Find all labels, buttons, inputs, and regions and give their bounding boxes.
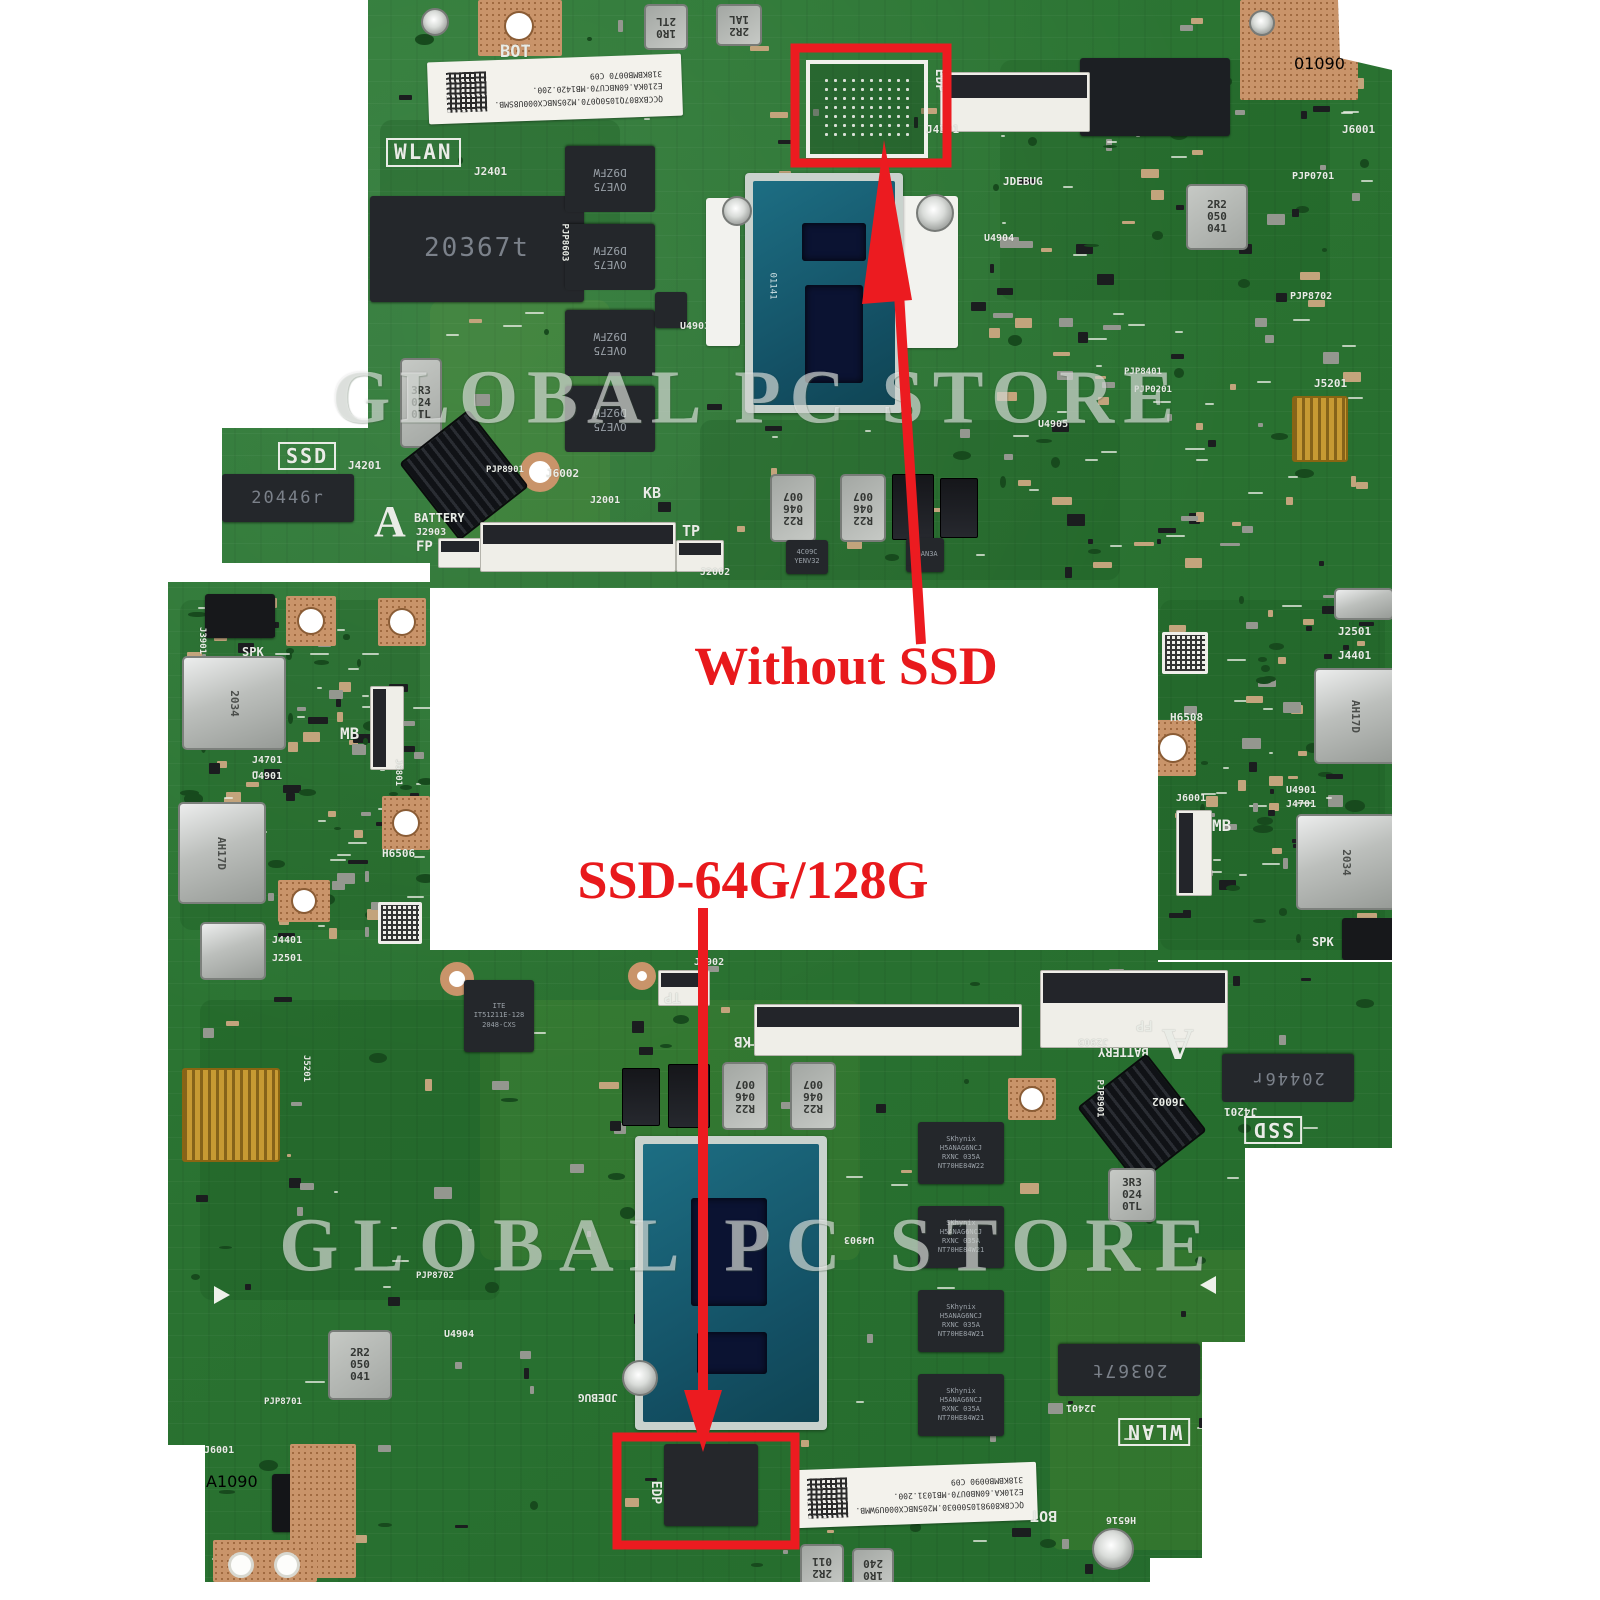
- smd-component: [275, 653, 290, 655]
- chip-marking: SKhynix H5ANAG6NCJ RXNC 035A NT70HE84W21: [938, 1303, 984, 1339]
- sticker-line: 318KBMB0070 C09: [590, 66, 663, 81]
- smd-component: [1351, 476, 1356, 487]
- ffc-actuator: [757, 1007, 1019, 1027]
- smd-component: [964, 1079, 970, 1084]
- smd-component: [1267, 214, 1286, 225]
- smd-component: [337, 854, 350, 856]
- inductor: R22 046 007: [790, 1062, 836, 1130]
- smd-component: [318, 820, 325, 822]
- smd-component: [414, 752, 424, 759]
- card-connector: [1292, 396, 1348, 462]
- smd-component: [1230, 384, 1235, 391]
- mount-hole: [394, 811, 418, 835]
- module-slot: 20446r: [222, 474, 354, 522]
- mount-hole: [299, 609, 323, 633]
- smd-component: [1067, 514, 1084, 526]
- smd-component: [1212, 871, 1223, 873]
- smd-component: [407, 896, 424, 898]
- smd-component: [1349, 1174, 1361, 1181]
- smd-component: [1265, 335, 1274, 343]
- smd-component: [1088, 338, 1107, 340]
- smd-component: [1257, 381, 1271, 383]
- smd-component: [625, 1498, 640, 1507]
- ffc-actuator: [661, 973, 707, 987]
- screw-grommet: [1092, 1528, 1134, 1570]
- smd-component: [348, 668, 359, 670]
- smd-component: [328, 811, 336, 817]
- copper-pad: [1150, 720, 1196, 776]
- ram-chip: SKhynix H5ANAG6NCJ RXNC 035A NT70HE84W21: [918, 1374, 1004, 1436]
- silkscreen-label: FP: [1136, 1018, 1153, 1032]
- smd-component: [354, 1535, 367, 1542]
- silkscreen-label: J4701: [252, 756, 282, 766]
- silkscreen-label: U4904: [444, 1330, 474, 1340]
- smd-component: [1322, 1335, 1333, 1338]
- smd-component: [337, 712, 343, 722]
- io-port: AH17D: [178, 802, 266, 904]
- smd-component: [1276, 293, 1287, 303]
- silkscreen-label: J6002: [546, 468, 579, 479]
- silkscreen-label: J6002: [1152, 1096, 1185, 1107]
- smd-component: [1242, 738, 1261, 749]
- smd-component: [1093, 562, 1112, 568]
- smd-component: [1223, 767, 1229, 769]
- copper-pad: [382, 796, 430, 850]
- silkscreen-label: KB: [734, 1034, 751, 1048]
- io-port: AH17D: [1314, 668, 1398, 764]
- smd-component: [1246, 696, 1263, 703]
- silkscreen-label: SSD: [278, 442, 336, 470]
- smd-component: [1185, 448, 1205, 450]
- module-slot: 20367t: [1058, 1344, 1200, 1396]
- smd-component: [1128, 324, 1144, 326]
- smd-component: [434, 1187, 452, 1198]
- smd-component: [1048, 1403, 1063, 1415]
- chip-marking: 20446r: [1251, 1067, 1324, 1089]
- smd-component: [1269, 752, 1273, 754]
- smd-component: [1000, 476, 1006, 488]
- smd-component: [1205, 403, 1213, 405]
- smd-component: [751, 1563, 763, 1566]
- smd-component: [1169, 625, 1185, 631]
- smd-component: [224, 797, 233, 799]
- smd-component: [530, 1386, 534, 1394]
- smd-component: [530, 1501, 538, 1509]
- silkscreen-label: BATTERY: [414, 512, 465, 524]
- smd-component: [639, 1047, 654, 1055]
- smd-component: [1348, 397, 1363, 399]
- smd-component: [501, 1098, 517, 1102]
- smd-component: [1253, 919, 1266, 923]
- smd-component: [1110, 545, 1122, 547]
- inductor: R22 046 007: [770, 474, 816, 542]
- capacitor: [668, 1064, 710, 1128]
- smd-component: [1238, 780, 1247, 791]
- inductor: R22 046 007: [840, 474, 886, 542]
- inductor: R22 046 007: [722, 1062, 768, 1130]
- inductor: 1R0 2TL: [644, 4, 688, 50]
- smd-component: [388, 1297, 400, 1307]
- io-port: [200, 922, 266, 980]
- smd-component: [1356, 999, 1374, 1008]
- smd-component: [632, 1021, 644, 1033]
- smd-component: [1001, 135, 1005, 137]
- smd-component: [750, 46, 769, 51]
- smd-component: [1213, 1454, 1218, 1458]
- smd-component: [1263, 1561, 1275, 1568]
- silkscreen-label: U4901: [252, 772, 282, 782]
- sticker-text: QCC8K809810500030.M205NBCX000U9WMB.E210K…: [855, 1472, 1025, 1516]
- smd-component: [1326, 774, 1343, 779]
- silkscreen-label: WLAN: [1118, 1418, 1190, 1446]
- smd-component: [953, 451, 971, 460]
- inductor: 1R0 240: [852, 1548, 894, 1590]
- silkscreen-label: J4701: [1286, 800, 1316, 810]
- smd-component: [226, 1021, 238, 1026]
- smd-component: [1051, 457, 1060, 468]
- mount-hole: [628, 962, 656, 990]
- silkscreen-label: PJP8701: [264, 1398, 302, 1407]
- smd-component: [1208, 440, 1216, 447]
- usb-c-port: 01090: [1294, 54, 1392, 114]
- mount-hole: [228, 1552, 254, 1578]
- smd-component: [570, 1164, 584, 1173]
- smd-component: [610, 1121, 621, 1130]
- smd-component: [1014, 241, 1034, 248]
- silkscreen-label: J5201: [301, 1055, 310, 1082]
- smd-component: [885, 554, 899, 560]
- info-sticker: QCC8K809810500030.M205NBCX000U9WMB.E210K…: [794, 1462, 1038, 1528]
- smd-component: [1269, 776, 1283, 786]
- smd-component: [778, 140, 794, 144]
- smd-component: [1183, 910, 1191, 918]
- smd-component: [1323, 352, 1338, 364]
- smd-component: [1029, 489, 1039, 491]
- module-slot: 20367t: [370, 196, 584, 302]
- smd-component: [1216, 792, 1228, 794]
- inductor: 2R2 011: [800, 1544, 844, 1590]
- smd-component: [308, 717, 327, 724]
- smd-component: [856, 1401, 864, 1403]
- smd-component: [455, 1362, 462, 1369]
- bga-pad-array: [806, 60, 928, 158]
- smd-component: [1088, 539, 1094, 543]
- smd-component: [599, 1082, 619, 1089]
- barcode-sticker: [378, 902, 422, 944]
- silkscreen-label: J4401: [272, 936, 302, 946]
- sticker-line: 318KBMB0090 C09: [951, 1472, 1024, 1487]
- port-marking: AH17D: [1350, 699, 1363, 732]
- ic-chip: 4C09C YENV32: [786, 540, 828, 574]
- ffc-connector: [1176, 810, 1212, 896]
- silkscreen-label: A: [1162, 1022, 1194, 1066]
- mount-hole: [390, 610, 414, 634]
- smd-component: [1181, 516, 1197, 521]
- smd-component: [1181, 1311, 1186, 1317]
- smd-component: [1319, 561, 1324, 566]
- smd-component: [1134, 542, 1154, 546]
- copper-pad: [378, 598, 426, 646]
- smd-component: [329, 690, 343, 698]
- smd-component: [770, 112, 789, 118]
- capacitor: [892, 474, 934, 540]
- smd-component: [1324, 654, 1332, 659]
- smd-component: [1299, 1387, 1310, 1397]
- usb-c-port: A1090: [206, 1472, 268, 1532]
- silkscreen-label: WLAN: [386, 138, 461, 167]
- smd-component: [492, 1081, 509, 1090]
- smd-component: [971, 302, 987, 311]
- smd-component: [1103, 145, 1117, 148]
- silkscreen-label: SSD: [1244, 1116, 1302, 1144]
- mount-hole: [274, 1552, 300, 1578]
- silkscreen-label: J4401: [1338, 650, 1371, 661]
- smd-component: [1288, 776, 1299, 779]
- silkscreen-label: FP: [416, 540, 433, 554]
- smd-component: [1357, 641, 1365, 645]
- silkscreen-label: H6516: [1106, 1514, 1136, 1524]
- smd-component: [1185, 558, 1201, 568]
- smd-component: [1201, 761, 1208, 764]
- bga-dot-grid: [822, 76, 912, 142]
- screw-grommet: [1249, 10, 1275, 36]
- silkscreen-label: U4901: [1286, 786, 1316, 796]
- smd-component: [378, 1523, 393, 1528]
- cpu-die: [697, 1332, 767, 1374]
- chip-marking: ITE IT51211E-128 2048-CXS: [474, 1002, 525, 1029]
- silkscreen-label: H6506: [382, 848, 415, 859]
- smd-component: [1320, 1221, 1330, 1223]
- barcode-sticker: [1162, 632, 1208, 674]
- smd-component: [1296, 934, 1301, 943]
- smd-component: [283, 785, 301, 793]
- smd-component: [329, 928, 337, 939]
- smd-component: [362, 653, 379, 655]
- smd-component: [783, 1550, 788, 1555]
- inductor-marking: 2R2 050 041: [1207, 199, 1227, 235]
- smd-component: [1052, 497, 1072, 505]
- smd-component: [1073, 254, 1088, 256]
- smd-component: [352, 744, 366, 755]
- mount-hole: [1021, 1088, 1043, 1110]
- smd-component: [348, 860, 368, 864]
- silkscreen-label: J6001: [204, 1446, 234, 1456]
- smd-component: [1085, 1564, 1093, 1574]
- smd-component: [1306, 626, 1312, 630]
- silkscreen-label: PJP8901: [1094, 1080, 1103, 1118]
- smd-component: [737, 526, 745, 532]
- smd-component: [1319, 1302, 1327, 1306]
- smd-component: [1320, 165, 1326, 169]
- smd-component: [587, 37, 592, 41]
- silkscreen-label: KB: [643, 486, 661, 501]
- smd-component: [1141, 169, 1159, 178]
- smd-component: [1012, 1528, 1031, 1537]
- smd-component: [970, 982, 980, 986]
- smd-component: [1020, 1183, 1039, 1194]
- chip-marking: 20367t: [1090, 1358, 1167, 1381]
- smd-component: [1250, 1531, 1264, 1533]
- smd-component: [1224, 1470, 1235, 1472]
- smd-component: [1239, 596, 1244, 603]
- capacitor: [940, 478, 978, 538]
- smd-component: [245, 1284, 251, 1290]
- ic-chip: [205, 594, 275, 638]
- annotation-ssd-config: SSD-64G/128G: [577, 849, 928, 911]
- ffc-actuator: [483, 525, 673, 544]
- silkscreen-label: J2401: [474, 166, 507, 177]
- smd-component: [268, 860, 285, 868]
- module-slot: 20446r: [1222, 1054, 1354, 1102]
- silkscreen-label: PJP8702: [1290, 292, 1332, 302]
- watermark-text-top: GLOBAL PC STORE: [331, 355, 1183, 442]
- chip-marking: SKhynix H5ANAG6NCJ RXNC 035A NT70HE84W22: [938, 1135, 984, 1171]
- ffc-actuator: [1043, 973, 1225, 1003]
- copper-pad: [278, 880, 330, 922]
- smd-component: [901, 1170, 911, 1173]
- io-port: [1334, 588, 1394, 620]
- smd-component: [361, 812, 371, 816]
- smd-component: [1233, 976, 1240, 986]
- smd-component: [1191, 18, 1203, 24]
- mount-hole: [293, 890, 315, 912]
- sticker-text: QCCBX807Q1050Q070.M205NBCX000U8SMB.E210K…: [494, 66, 664, 110]
- smd-component: [354, 830, 363, 838]
- smd-component: [1268, 810, 1275, 816]
- smd-component: [418, 778, 434, 785]
- ffc-actuator: [441, 541, 479, 552]
- smd-component: [721, 1007, 731, 1013]
- smd-component: [989, 328, 1000, 338]
- fiducial-triangle: [214, 1286, 230, 1304]
- qr-code: [808, 1477, 849, 1518]
- io-port: 2034: [1296, 814, 1396, 910]
- battery-connector: [1077, 1053, 1207, 1184]
- annotation-without-ssd: Without SSD: [694, 635, 998, 697]
- silkscreen-label: J4301: [926, 124, 959, 135]
- port-marking: AH17D: [216, 836, 229, 869]
- smd-component: [973, 1540, 987, 1542]
- smd-component: [1246, 622, 1258, 629]
- smd-component: [365, 927, 369, 937]
- product-photo-canvas: 1R0 2TL2R2 1ALQCCBX807Q1050Q070.M205NBCX…: [0, 0, 1600, 1600]
- smd-component: [1004, 454, 1013, 460]
- ffc-connector: [370, 686, 404, 770]
- smd-component: [299, 789, 316, 796]
- smd-component: [259, 1460, 278, 1471]
- sticker-content: QCCBX807Q1050Q070.M205NBCX000U8SMB.E210K…: [443, 62, 666, 116]
- pcb-shade: [1050, 1250, 1380, 1550]
- ffc-actuator: [679, 543, 721, 555]
- smd-component: [891, 1184, 908, 1186]
- silkscreen-label: J2002: [700, 568, 730, 578]
- ssd-emmc-chip: [664, 1444, 758, 1526]
- silkscreen-label: JDEBUG: [1003, 176, 1043, 187]
- smd-component: [332, 881, 345, 890]
- silkscreen-label: A: [374, 500, 406, 544]
- ram-chip: SKhynix H5ANAG6NCJ RXNC 035A NT70HE84W22: [918, 1122, 1004, 1184]
- silkscreen-label: TP: [682, 524, 700, 539]
- smd-component: [455, 1525, 468, 1528]
- smd-component: [1062, 1539, 1069, 1549]
- smd-component: [1085, 459, 1097, 461]
- smd-component: [1262, 863, 1280, 865]
- smd-component: [1303, 619, 1314, 625]
- smd-component: [1078, 332, 1088, 343]
- ic-chip: [1080, 58, 1230, 136]
- ram-chip: OVE75 D9ZFW: [565, 224, 655, 290]
- inductor-marking: R22 046 007: [735, 1078, 755, 1114]
- smd-component: [191, 1274, 200, 1280]
- silkscreen-label: J2902: [694, 958, 724, 968]
- smd-component: [1258, 423, 1263, 427]
- mount-hole: [506, 13, 532, 39]
- silkscreen-label: MB: [340, 726, 359, 742]
- smd-component: [413, 707, 431, 709]
- silkscreen-label: J2501: [1338, 626, 1371, 637]
- smd-component: [343, 634, 349, 639]
- inductor-marking: R22 046 007: [783, 490, 803, 526]
- smd-component: [1227, 1177, 1238, 1179]
- silkscreen-label: BOT: [1030, 1508, 1057, 1523]
- smd-component: [1253, 825, 1273, 832]
- smd-component: [1180, 25, 1193, 31]
- silkscreen-label: J5201: [1314, 378, 1347, 389]
- silkscreen-label: TP: [664, 990, 681, 1004]
- smd-component: [1063, 186, 1073, 188]
- smd-component: [1282, 605, 1301, 607]
- smd-component: [520, 1351, 531, 1358]
- smd-component: [1273, 1353, 1289, 1361]
- smd-component: [1322, 1542, 1340, 1553]
- sticker-content: QCC8K809810500030.M205NBCX000U9WMB.E210K…: [804, 1468, 1027, 1522]
- smd-component: [801, 1440, 809, 1447]
- smd-component: [1251, 1451, 1267, 1457]
- smd-component: [336, 699, 341, 706]
- smd-component: [1286, 497, 1293, 505]
- smd-component: [1226, 885, 1240, 891]
- smd-component: [305, 1381, 325, 1383]
- chip-marking: 20446r: [251, 487, 324, 509]
- smd-component: [993, 184, 999, 191]
- inductor-marking: R22 046 007: [803, 1078, 823, 1114]
- smd-component: [1158, 528, 1176, 533]
- silkscreen-label: U4904: [984, 234, 1014, 244]
- silkscreen-label: J4201: [348, 460, 381, 471]
- smd-component: [990, 264, 994, 272]
- smd-component: [317, 687, 322, 689]
- inductor-marking: 2R2 050 041: [350, 1347, 370, 1383]
- smd-component: [608, 1173, 625, 1180]
- silkscreen-label: PJP8603: [559, 224, 568, 262]
- smd-component: [1356, 482, 1368, 489]
- screw-grommet: [722, 196, 752, 226]
- smd-component: [1249, 762, 1257, 772]
- smd-component: [1319, 1330, 1333, 1334]
- inductor-marking: 2R2 1AL: [729, 13, 749, 37]
- smd-component: [1169, 913, 1184, 919]
- silkscreen-label: J6001: [1342, 124, 1375, 135]
- silkscreen-label: J2401: [1066, 1402, 1096, 1412]
- ffc-actuator: [373, 689, 386, 767]
- ffc-actuator: [943, 75, 1087, 98]
- smd-component: [1103, 325, 1121, 330]
- smd-component: [310, 653, 328, 655]
- smd-component: [1342, 345, 1357, 347]
- smd-component: [268, 893, 274, 901]
- smd-component: [1303, 1127, 1318, 1129]
- smd-component: [1151, 190, 1164, 200]
